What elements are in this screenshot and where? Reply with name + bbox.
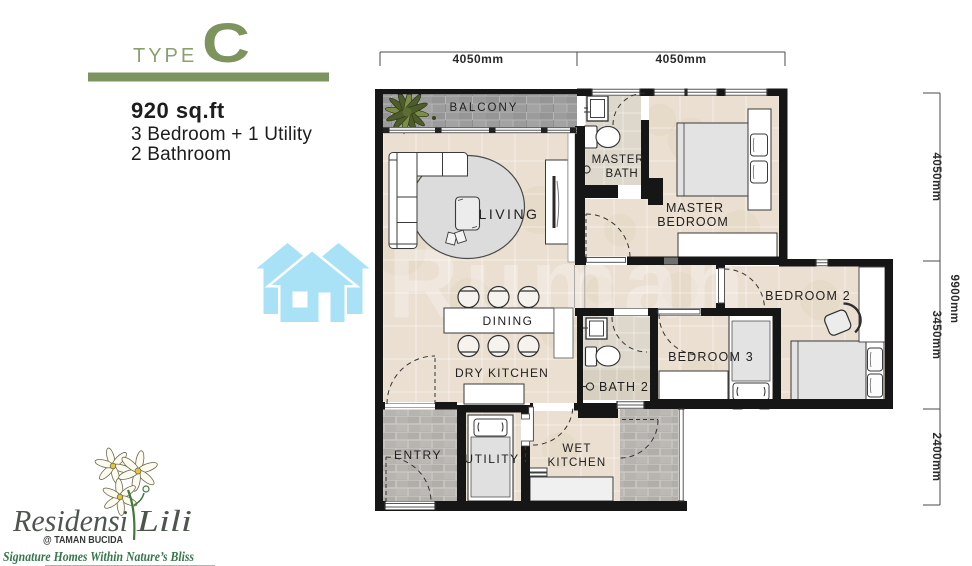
svg-text:ENTRY: ENTRY <box>394 448 442 462</box>
svg-text:DRY KITCHEN: DRY KITCHEN <box>455 366 549 380</box>
svg-text:BEDROOM 3: BEDROOM 3 <box>668 350 754 364</box>
svg-text:4050mm: 4050mm <box>930 152 942 201</box>
svg-text:BEDROOM 2: BEDROOM 2 <box>765 289 851 303</box>
svg-text:3 Bedroom + 1 Utility: 3 Bedroom + 1 Utility <box>131 124 312 145</box>
svg-text:UTILITY: UTILITY <box>464 452 519 466</box>
svg-text:BATH: BATH <box>605 168 638 180</box>
svg-text:C: C <box>202 11 250 74</box>
svg-text:MASTER: MASTER <box>666 201 724 215</box>
svg-text:2400mm: 2400mm <box>930 432 942 481</box>
svg-text:LIVING: LIVING <box>479 206 540 222</box>
svg-text:4050mm: 4050mm <box>452 52 503 66</box>
svg-text:Signature Homes Within Nature’: Signature Homes Within Nature’s Bliss <box>3 549 194 564</box>
svg-text:BALCONY: BALCONY <box>450 102 519 114</box>
svg-text:4050mm: 4050mm <box>655 52 706 66</box>
svg-text:BATH 2: BATH 2 <box>599 380 649 394</box>
svg-text:@ TAMAN BUCIDA: @ TAMAN BUCIDA <box>43 535 123 546</box>
svg-text:DINING: DINING <box>483 314 534 328</box>
svg-text:3450mm: 3450mm <box>930 310 942 359</box>
svg-text:KITCHEN: KITCHEN <box>548 457 607 469</box>
svg-text:9900mm: 9900mm <box>948 274 960 323</box>
svg-text:MASTER: MASTER <box>592 154 645 166</box>
svg-text:920 sq.ft: 920 sq.ft <box>131 98 225 123</box>
svg-text:Residensi: Residensi <box>12 503 128 538</box>
svg-text:Lili: Lili <box>136 503 192 538</box>
svg-text:WET: WET <box>562 443 591 455</box>
svg-text:2 Bathroom: 2 Bathroom <box>131 144 231 165</box>
svg-text:TYPE: TYPE <box>133 45 197 67</box>
svg-text:BEDROOM: BEDROOM <box>657 215 729 229</box>
